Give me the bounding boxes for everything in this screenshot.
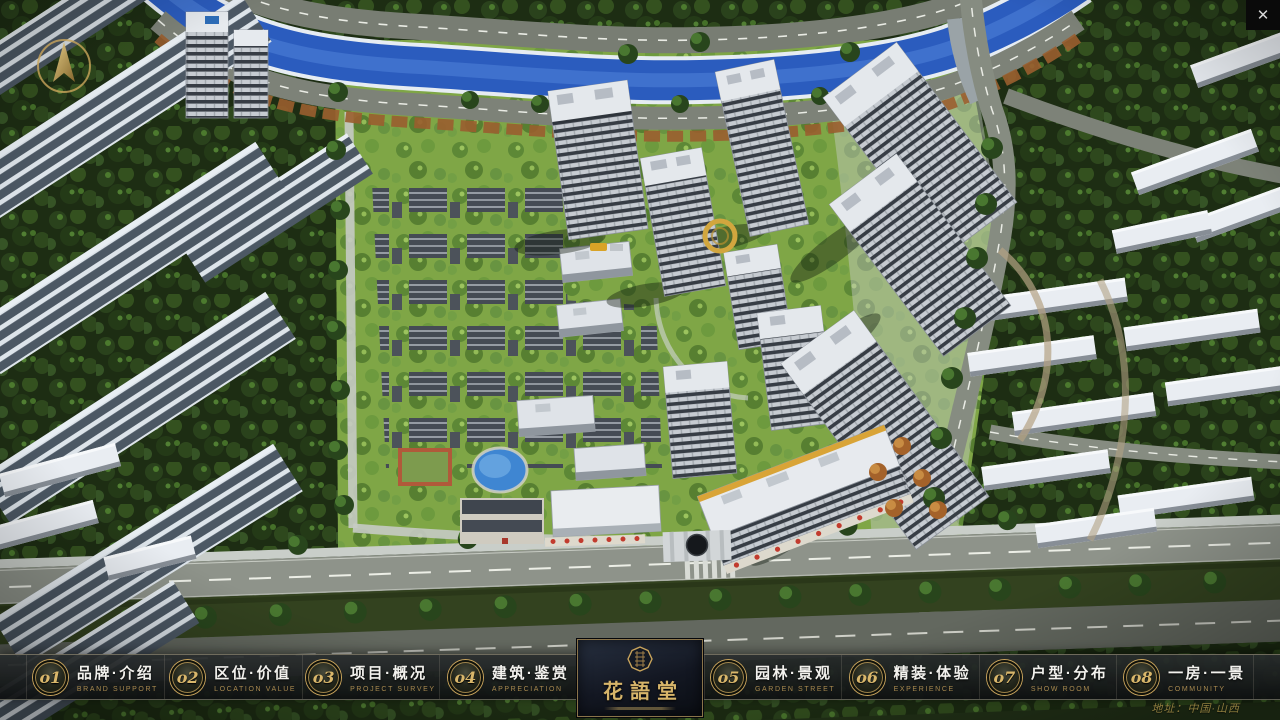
nav-label-en: PROJECT SURVEY — [350, 686, 436, 693]
nav-label-zh: 一房·一景 — [1168, 662, 1246, 683]
main-gate — [663, 530, 732, 562]
project-logo-title: 花語堂 — [596, 675, 684, 704]
nav-label-zh: 户型·分布 — [1031, 662, 1109, 683]
nav-label-zh: 区位·价值 — [214, 662, 296, 683]
nav-label-zh: 精装·体验 — [894, 662, 972, 683]
nav-label-en: GARDEN STREET — [755, 686, 835, 693]
nav-label-en: EXPERIENCE — [894, 686, 972, 693]
project-logo-panel[interactable]: 花語堂 — [577, 639, 703, 717]
nav-item-one-room-one-view[interactable]: o8 一房·一景 COMMUNITY — [1117, 655, 1254, 699]
nav-number-badge: o7 — [987, 660, 1022, 695]
nav-number-badge: o1 — [33, 660, 68, 695]
nav-label-en: COMMUNITY — [1168, 686, 1246, 693]
nav-label-zh: 建筑·鉴赏 — [492, 662, 570, 683]
nav-item-project-survey[interactable]: o3 项目·概况 PROJECT SURVEY — [303, 655, 441, 699]
nav-number-badge: o6 — [850, 660, 885, 695]
nav-label-zh: 品牌·介绍 — [77, 662, 158, 683]
kindergarten-building — [400, 450, 450, 484]
nav-item-unit-distribution[interactable]: o7 户型·分布 SHOW ROOM — [980, 655, 1117, 699]
sales-presentation-screen: ✕ o1 品牌·介绍 BRAND SUPPORT o2 区位·价值 LOCATI… — [0, 0, 1280, 720]
nav-number-badge: o4 — [448, 660, 483, 695]
nav-number-badge: o5 — [711, 660, 746, 695]
nav-item-garden-landscape[interactable]: o5 园林·景观 GARDEN STREET — [704, 655, 842, 699]
nav-label-zh: 园林·景观 — [755, 662, 835, 683]
nav-group-right: o5 园林·景观 GARDEN STREET o6 精装·体验 EXPERIEN… — [704, 655, 1280, 699]
nav-group-left: o1 品牌·介绍 BRAND SUPPORT o2 区位·价值 LOCATION… — [0, 655, 578, 699]
brand-seal-icon — [627, 646, 653, 672]
logo-subtext-line — [604, 707, 676, 710]
nav-label-en: APPRECIATION — [492, 686, 570, 693]
nav-label-en: LOCATION VALUE — [214, 686, 296, 693]
nav-label-zh: 项目·概况 — [350, 662, 436, 683]
close-button[interactable]: ✕ — [1246, 0, 1280, 30]
compass-north-icon — [34, 36, 94, 96]
nav-number-badge: o8 — [1124, 660, 1159, 695]
nav-item-brand-intro[interactable]: o1 品牌·介绍 BRAND SUPPORT — [26, 655, 165, 699]
nav-label-en: SHOW ROOM — [1031, 686, 1109, 693]
nav-item-location-value[interactable]: o2 区位·价值 LOCATION VALUE — [165, 655, 303, 699]
nav-item-architecture[interactable]: o4 建筑·鉴赏 APPRECIATION — [440, 655, 578, 699]
project-address: 地址：中国·山西 — [1151, 700, 1240, 716]
nav-label-en: BRAND SUPPORT — [77, 686, 158, 693]
nav-item-deco-experience[interactable]: o6 精装·体验 EXPERIENCE — [842, 655, 979, 699]
nav-number-badge: o2 — [170, 660, 205, 695]
aerial-site-render[interactable] — [0, 0, 1280, 720]
nav-number-badge: o3 — [306, 660, 341, 695]
